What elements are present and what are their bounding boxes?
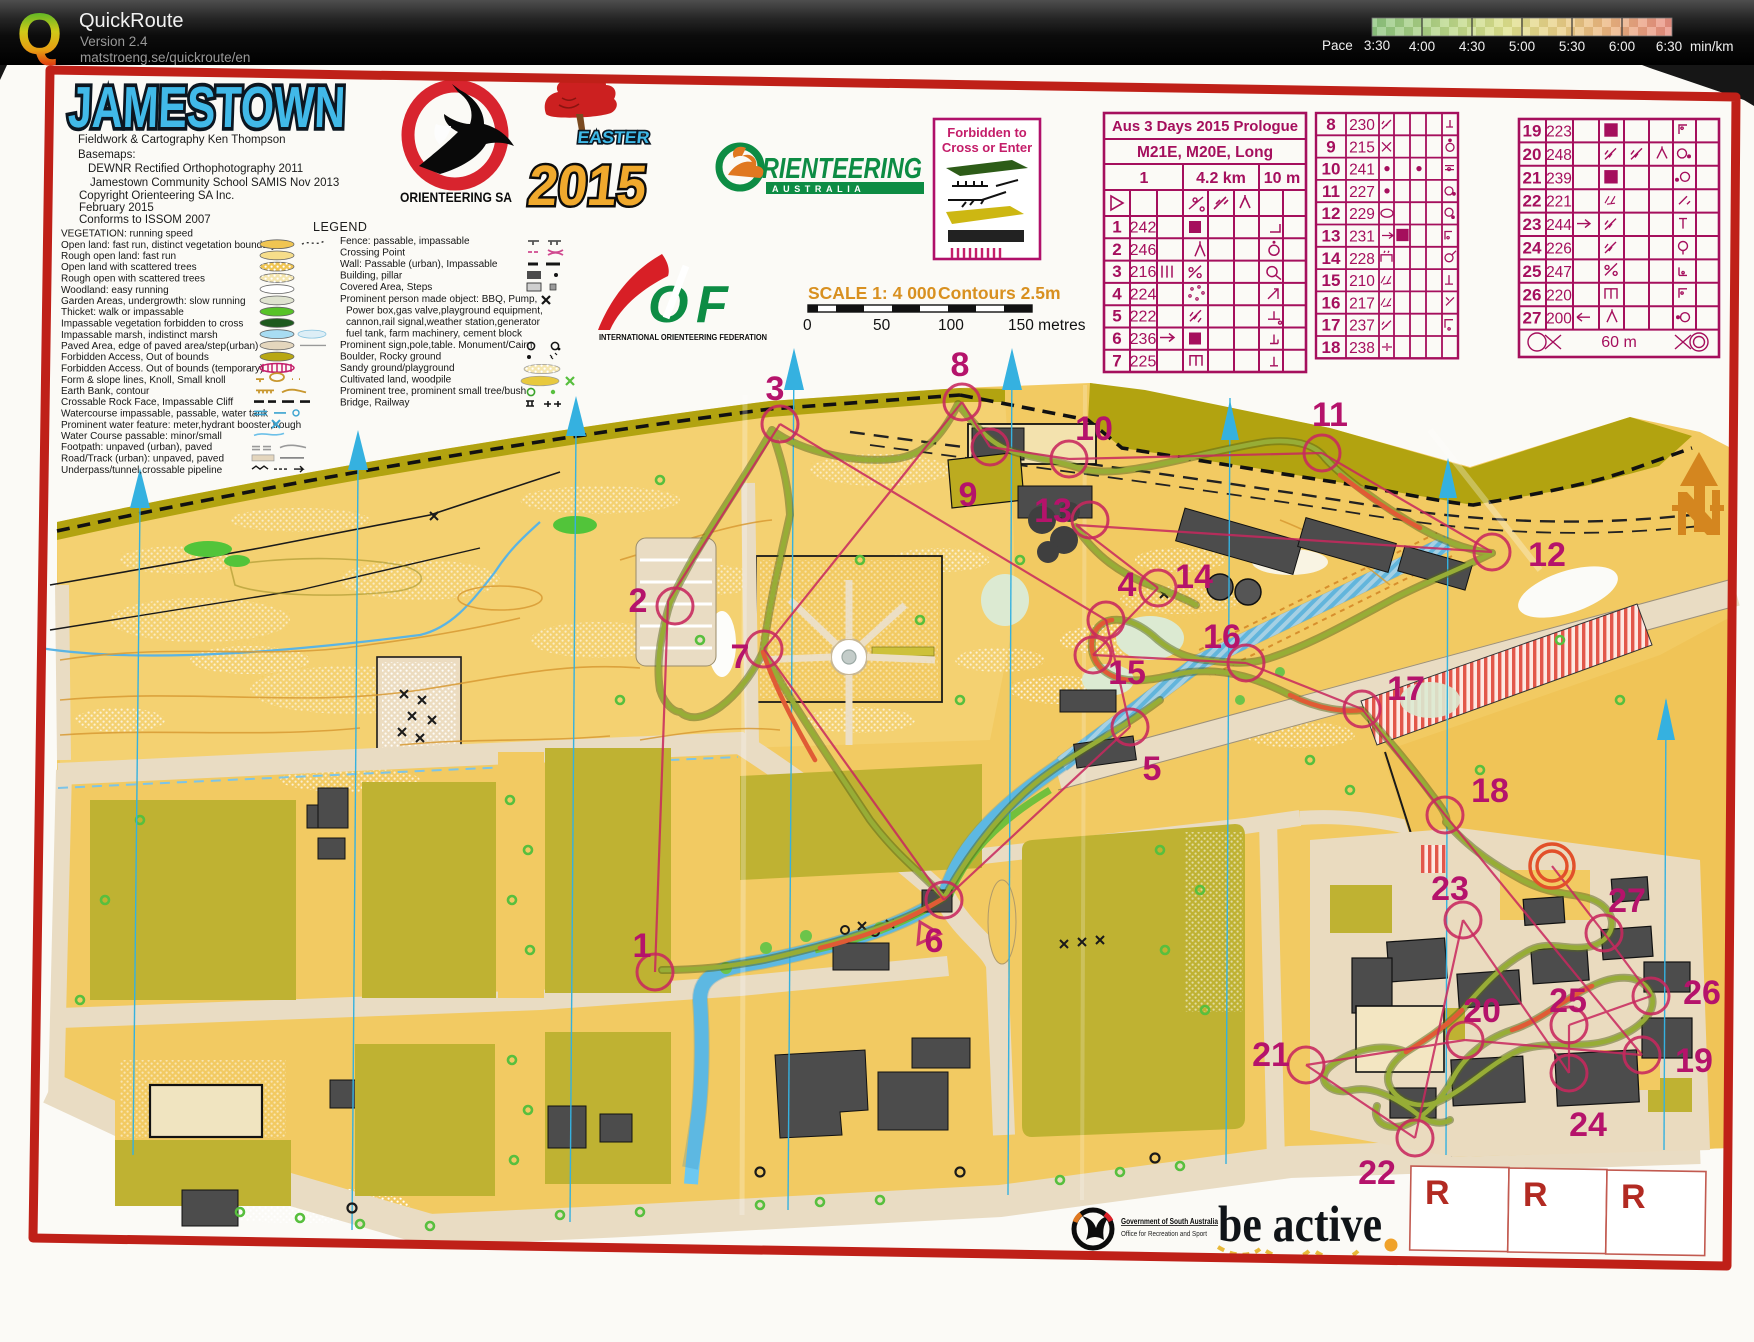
svg-text:min/km: min/km [1690, 39, 1734, 54]
svg-text:27: 27 [1608, 882, 1646, 920]
svg-text:220: 220 [1546, 287, 1572, 304]
svg-text:JAMESTOWN: JAMESTOWN [67, 75, 346, 140]
svg-text:INTERNATIONAL ORIENTEERING FED: INTERNATIONAL ORIENTEERING FEDERATION [599, 333, 767, 342]
svg-text:4.2 km: 4.2 km [1196, 170, 1246, 187]
svg-text:Rough open with scattered tree: Rough open with scattered trees [61, 274, 205, 285]
svg-text:25: 25 [1523, 262, 1542, 281]
svg-text:Footpath: unpaved (urban), pav: Footpath: unpaved (urban), paved [61, 442, 212, 453]
svg-text:2: 2 [1112, 240, 1121, 259]
svg-text:9: 9 [1326, 137, 1335, 156]
svg-text:Impassable marsh, indistinct m: Impassable marsh, indistinct marsh [61, 330, 218, 341]
svg-text:17: 17 [1387, 670, 1425, 708]
svg-text:15: 15 [1322, 271, 1341, 290]
svg-text:cannon,rail signal,weather sta: cannon,rail signal,weather station,gener… [346, 317, 541, 328]
svg-text:Open land: fast run, distinct: Open land: fast run, distinct vegetation… [61, 240, 276, 251]
svg-text:Watercourse impassable, passab: Watercourse impassable, passable, water … [61, 409, 269, 420]
svg-text:Wall: Passable (urban), Impass: Wall: Passable (urban), Impassable [340, 259, 498, 270]
svg-text:10: 10 [1322, 160, 1341, 179]
svg-text:19: 19 [1675, 1042, 1713, 1080]
svg-text:Prominent person made object:: Prominent person made object: BBQ, Pump, [340, 294, 537, 305]
svg-text:16: 16 [1203, 618, 1241, 656]
svg-text:Covered Area, Steps: Covered Area, Steps [340, 282, 432, 293]
svg-text:221: 221 [1546, 194, 1572, 211]
svg-text:Government of South Australia: Government of South Australia [1121, 1217, 1218, 1226]
svg-text:M21E, M20E, Long: M21E, M20E, Long [1137, 144, 1273, 161]
svg-text:R: R [1621, 1178, 1646, 1216]
svg-text:ORIENTEERING SA: ORIENTEERING SA [400, 189, 512, 205]
svg-text:248: 248 [1546, 147, 1572, 164]
svg-text:Aus 3 Days 2015 Prologue: Aus 3 Days 2015 Prologue [1112, 118, 1298, 135]
svg-text:Earth Bank, contour: Earth Bank, contour [61, 386, 150, 397]
svg-text:229: 229 [1349, 206, 1375, 223]
svg-text:5:00: 5:00 [1509, 39, 1535, 54]
svg-text:Prominent sign,pole,table. M: Prominent sign,pole,table. Monument/Cair… [340, 340, 532, 351]
svg-text:QuickRoute: QuickRoute [79, 10, 184, 32]
svg-text:16: 16 [1322, 293, 1341, 312]
svg-text:Thicket: walk or impassable: Thicket: walk or impassable [61, 307, 184, 318]
svg-text:239: 239 [1546, 170, 1572, 187]
svg-text:Office for Recreation and Spor: Office for Recreation and Sport [1121, 1231, 1207, 1238]
svg-text:Fence: passable, impassable: Fence: passable, impassable [340, 236, 470, 247]
svg-text:18: 18 [1471, 772, 1509, 810]
svg-text:200: 200 [1546, 311, 1572, 328]
svg-text:100: 100 [938, 317, 964, 334]
svg-text:226: 226 [1546, 241, 1572, 258]
svg-text:21: 21 [1252, 1036, 1290, 1074]
svg-text:238: 238 [1349, 340, 1375, 357]
svg-text:Basemaps:: Basemaps: [78, 149, 136, 161]
svg-text:VEGETATION: running speed: VEGETATION: running speed [61, 229, 193, 240]
svg-text:4:30: 4:30 [1459, 39, 1485, 54]
svg-text:Cross or Enter: Cross or Enter [942, 140, 1032, 155]
svg-text:9: 9 [959, 476, 978, 514]
svg-text:26: 26 [1683, 974, 1721, 1012]
svg-text:25: 25 [1549, 982, 1587, 1020]
svg-text:217: 217 [1349, 295, 1375, 312]
svg-text:12: 12 [1528, 536, 1566, 574]
svg-text:Forbidden Access. Out of bound: Forbidden Access. Out of bounds (tempora… [61, 364, 263, 375]
svg-text:11: 11 [1312, 396, 1348, 434]
svg-text:2015: 2015 [525, 154, 650, 218]
svg-text:1: 1 [633, 927, 652, 965]
svg-text:4:00: 4:00 [1409, 39, 1435, 54]
svg-text:8: 8 [951, 346, 970, 384]
svg-text:Pace: Pace [1322, 38, 1353, 53]
svg-text:R: R [1523, 1176, 1548, 1214]
svg-text:13: 13 [1034, 492, 1072, 530]
svg-text:1: 1 [1140, 170, 1149, 187]
svg-text:Rough open land: fast run: Rough open land: fast run [61, 251, 176, 262]
svg-text:231: 231 [1349, 229, 1375, 246]
svg-text:227: 227 [1349, 184, 1375, 201]
svg-text:Fieldwork & Cartography Ken Th: Fieldwork & Cartography Ken Thompson [78, 134, 286, 146]
svg-text:230: 230 [1349, 117, 1375, 134]
svg-text:18: 18 [1322, 338, 1341, 357]
svg-text:6: 6 [1112, 329, 1121, 348]
svg-text:26: 26 [1523, 285, 1542, 304]
svg-text:21: 21 [1523, 168, 1542, 187]
svg-text:DEWNR Rectified Orthophotograp: DEWNR Rectified Orthophotography 2011 [88, 163, 303, 175]
svg-text:Prominent water feature: meter: Prominent water feature: meter,hydrant b… [61, 420, 301, 431]
svg-text:RIENTEERING: RIENTEERING [762, 153, 922, 185]
svg-text:Crossing Point: Crossing Point [340, 248, 405, 259]
svg-text:AUSTRALIA: AUSTRALIA [772, 184, 865, 194]
svg-text:Version 2.4: Version 2.4 [80, 34, 148, 49]
svg-text:Crossable Rock Face, Impassabl: Crossable Rock Face, Impassable Cliff [61, 397, 233, 408]
svg-text:Open land with scattered trees: Open land with scattered trees [61, 262, 197, 273]
svg-text:Building, pillar: Building, pillar [340, 271, 403, 282]
svg-text:6:00: 6:00 [1609, 39, 1635, 54]
svg-text:2: 2 [629, 582, 648, 620]
svg-text:Garden Areas, undergrowth: slo: Garden Areas, undergrowth: slow running [61, 296, 246, 307]
svg-text:3: 3 [766, 370, 785, 408]
svg-text:22: 22 [1523, 192, 1542, 211]
svg-text:210: 210 [1349, 273, 1375, 290]
svg-text:12: 12 [1322, 204, 1341, 223]
svg-text:Q: Q [17, 2, 62, 67]
svg-text:5:30: 5:30 [1559, 39, 1585, 54]
svg-text:Contours 2.5m: Contours 2.5m [938, 283, 1061, 303]
svg-text:Forbidden Access, Out of bound: Forbidden Access, Out of bounds [61, 352, 209, 363]
svg-text:223: 223 [1546, 124, 1572, 141]
svg-text:5: 5 [1143, 750, 1162, 788]
svg-text:Forbidden to: Forbidden to [947, 125, 1026, 140]
svg-text:50: 50 [873, 317, 891, 334]
svg-text:Bridge, Railway: Bridge, Railway [340, 398, 409, 409]
svg-text:150 metres: 150 metres [1008, 317, 1086, 334]
svg-text:Impassable vegetation forbidde: Impassable vegetation forbidden to cross [61, 319, 243, 330]
svg-text:Underpass/tunnel,crossable pip: Underpass/tunnel,crossable pipeline [61, 465, 223, 476]
svg-text:Water Course passable: minor/s: Water Course passable: minor/small [61, 431, 222, 442]
svg-text:216: 216 [1130, 264, 1157, 281]
svg-text:5: 5 [1112, 307, 1121, 326]
svg-text:6:30: 6:30 [1656, 39, 1682, 54]
svg-text:22: 22 [1358, 1154, 1396, 1192]
svg-text:EASTER: EASTER [577, 128, 651, 147]
svg-text:236: 236 [1130, 331, 1157, 348]
svg-text:23: 23 [1523, 215, 1542, 234]
svg-text:222: 222 [1130, 309, 1157, 326]
svg-text:228: 228 [1349, 251, 1375, 268]
svg-text:Paved Area, edge of paved area: Paved Area, edge of paved area/step(urba… [61, 341, 258, 352]
svg-text:20: 20 [1463, 992, 1501, 1030]
svg-text:7: 7 [731, 638, 750, 676]
svg-text:Cultivated land, woodpile: Cultivated land, woodpile [340, 375, 452, 386]
svg-text:Road/Track (urban): unpaved, p: Road/Track (urban): unpaved, paved [61, 454, 224, 465]
svg-text:3: 3 [1112, 262, 1121, 281]
svg-text:23: 23 [1431, 870, 1469, 908]
svg-text:225: 225 [1130, 353, 1157, 370]
svg-text:27: 27 [1523, 309, 1542, 328]
svg-text:Conforms to ISSOM 2007: Conforms to ISSOM 2007 [79, 214, 211, 226]
svg-text:Prominent tree, prominent smal: Prominent tree, prominent small tree/bus… [340, 386, 526, 397]
svg-text:242: 242 [1130, 220, 1157, 237]
svg-text:15: 15 [1108, 654, 1146, 692]
svg-text:Woodland: easy running: Woodland: easy running [61, 285, 169, 296]
svg-text:Power box,gas valve,playground: Power box,gas valve,playground equipment… [346, 305, 543, 316]
svg-text:14: 14 [1322, 249, 1341, 268]
svg-text:10: 10 [1075, 410, 1113, 448]
svg-text:Form & slope lines, Knoll, Sma: Form & slope lines, Knoll, Small knoll [61, 375, 226, 386]
svg-text:F: F [696, 276, 729, 334]
svg-text:20: 20 [1523, 145, 1542, 164]
svg-text:matstroeng.se/quickroute/en: matstroeng.se/quickroute/en [80, 50, 250, 65]
svg-text:237: 237 [1349, 318, 1375, 335]
svg-text:14: 14 [1175, 558, 1213, 596]
svg-text:10 m: 10 m [1264, 170, 1300, 187]
svg-text:R: R [1425, 1174, 1450, 1212]
svg-text:11: 11 [1322, 182, 1340, 201]
svg-text:be active: be active [1218, 1197, 1382, 1253]
svg-text:Sandy ground/playground: Sandy ground/playground [340, 363, 455, 374]
svg-text:24: 24 [1569, 1106, 1607, 1144]
svg-text:246: 246 [1130, 242, 1157, 259]
svg-text:0: 0 [803, 317, 812, 334]
svg-text:13: 13 [1322, 227, 1341, 246]
svg-text:60 m: 60 m [1601, 334, 1637, 351]
svg-text:Copyright Orienteering SA Inc.: Copyright Orienteering SA Inc. [79, 190, 234, 202]
svg-text:Jamestown Community School SAM: Jamestown Community School SAMIS Nov 201… [90, 177, 339, 189]
svg-text:1: 1 [1112, 218, 1121, 237]
svg-text:244: 244 [1546, 217, 1572, 234]
svg-text:19: 19 [1523, 122, 1542, 141]
svg-text:LEGEND: LEGEND [313, 220, 367, 234]
svg-text:4: 4 [1112, 284, 1122, 303]
svg-text:241: 241 [1349, 162, 1375, 179]
svg-text:7: 7 [1112, 351, 1121, 370]
svg-text:247: 247 [1546, 264, 1572, 281]
svg-text:6: 6 [925, 922, 944, 960]
svg-text:3:30: 3:30 [1364, 38, 1390, 53]
svg-text:24: 24 [1523, 239, 1542, 258]
svg-text:fuel tank, farm machinery, cem: fuel tank, farm machinery, cement block [346, 328, 523, 339]
svg-text:17: 17 [1322, 316, 1341, 335]
svg-text:215: 215 [1349, 139, 1375, 156]
svg-text:4: 4 [1118, 566, 1137, 604]
svg-text:224: 224 [1130, 286, 1157, 303]
svg-text:8: 8 [1326, 115, 1335, 134]
svg-text:Boulder, Rocky ground: Boulder, Rocky ground [340, 352, 441, 363]
svg-text:February 2015: February 2015 [79, 202, 154, 214]
svg-text:SCALE 1: 4 000: SCALE 1: 4 000 [808, 283, 937, 303]
